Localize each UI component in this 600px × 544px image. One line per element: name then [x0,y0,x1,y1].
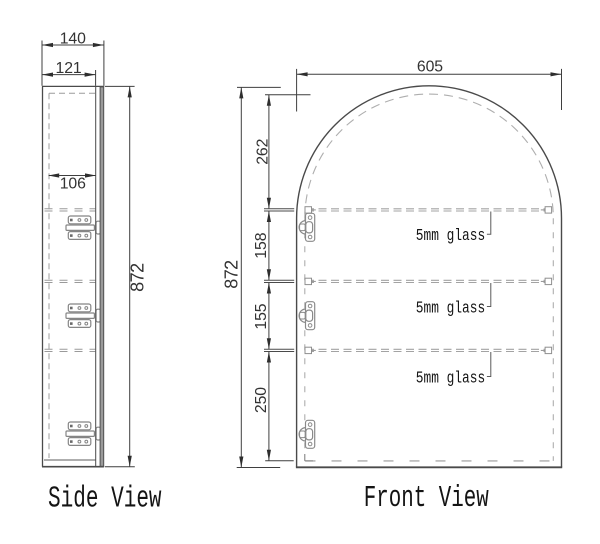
svg-text:5mm glass: 5mm glass [416,227,485,246]
svg-text:262: 262 [255,139,272,165]
svg-text:872: 872 [221,260,241,289]
svg-text:140: 140 [60,31,86,48]
svg-text:5mm glass: 5mm glass [416,370,485,389]
svg-text:872: 872 [128,263,148,292]
svg-text:106: 106 [60,176,86,193]
svg-text:605: 605 [417,58,443,75]
svg-text:121: 121 [56,60,82,77]
svg-text:Side View: Side View [48,482,162,517]
svg-text:158: 158 [253,232,270,258]
svg-text:155: 155 [253,303,270,329]
svg-text:250: 250 [253,387,270,413]
svg-text:5mm glass: 5mm glass [416,299,485,318]
svg-text:Front View: Front View [364,481,489,516]
